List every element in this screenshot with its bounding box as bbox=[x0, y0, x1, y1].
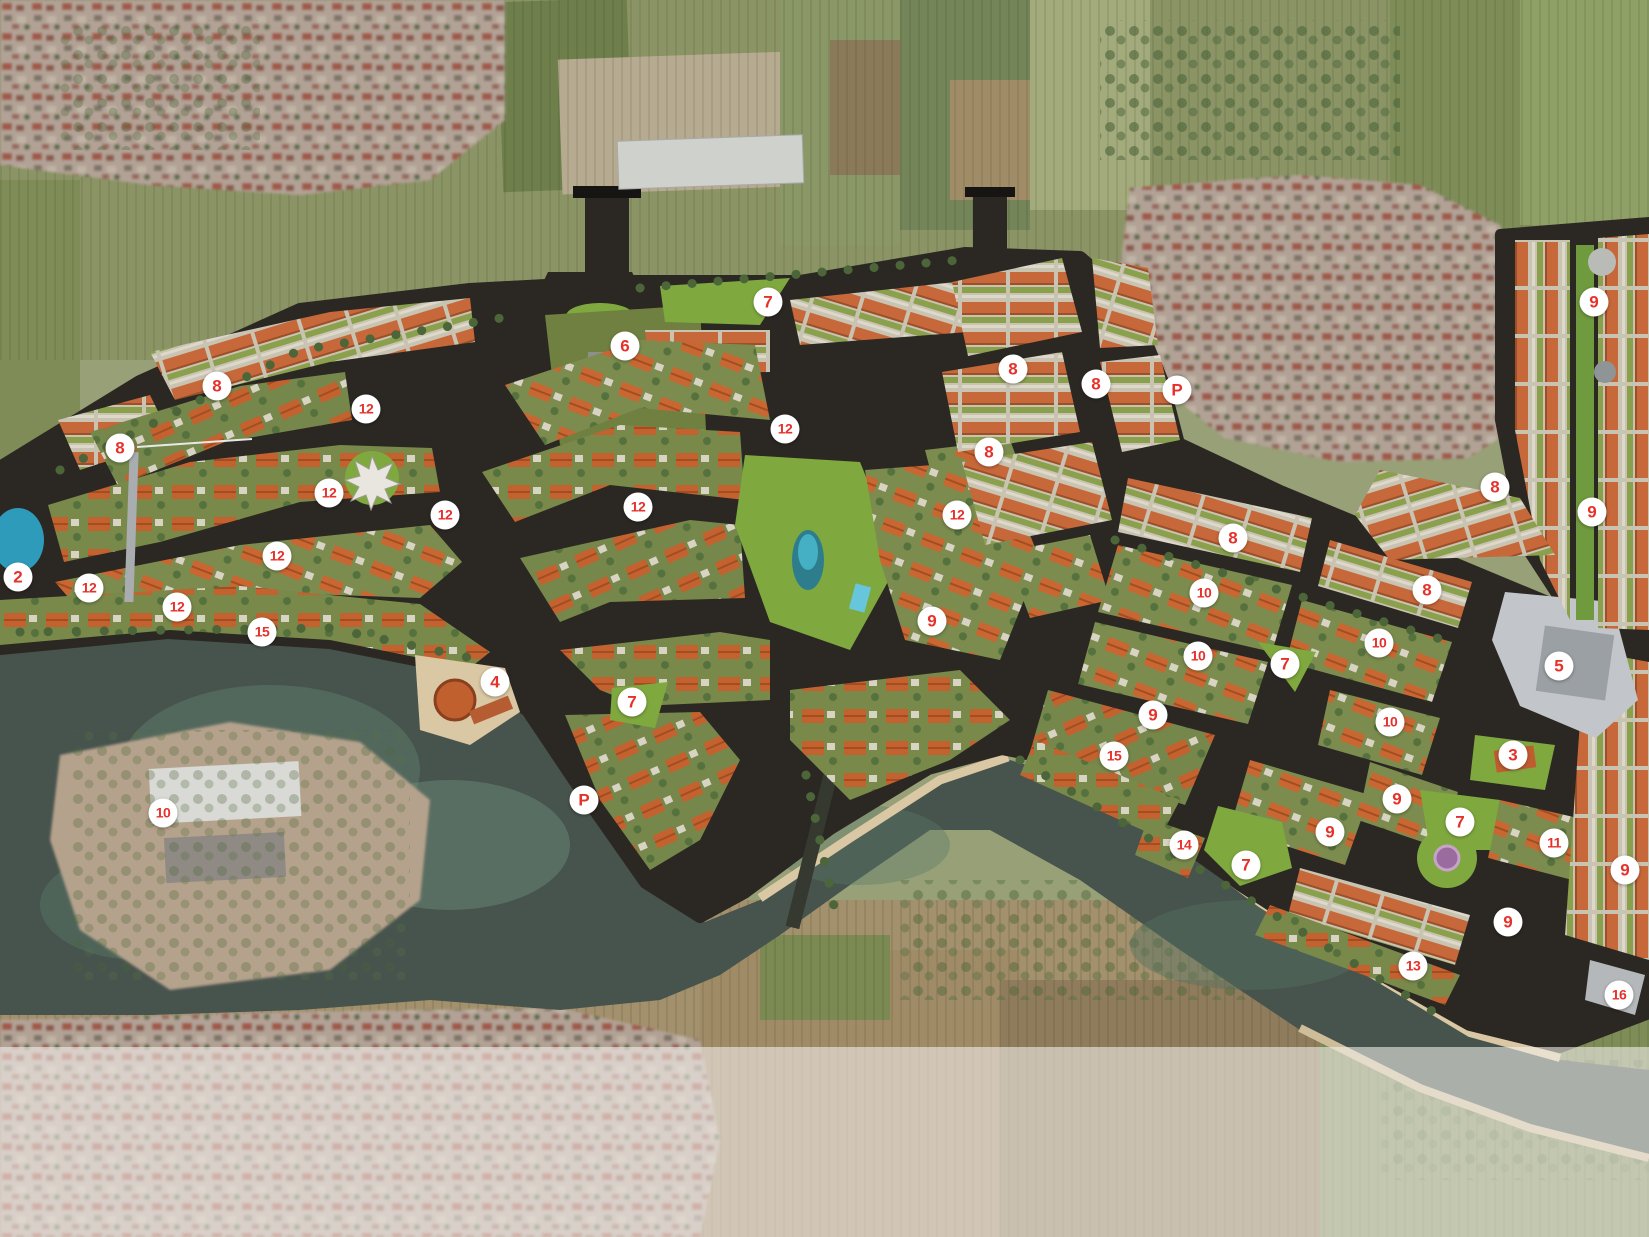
area-marker-8: 8 bbox=[975, 438, 1004, 467]
area-marker-9: 9 bbox=[1580, 288, 1609, 317]
area-marker-15: 15 bbox=[1100, 742, 1129, 771]
area-marker-7: 7 bbox=[1232, 851, 1261, 880]
area-marker-14: 14 bbox=[1170, 831, 1199, 860]
area-marker-7: 7 bbox=[1271, 650, 1300, 679]
area-marker-8: 8 bbox=[1481, 473, 1510, 502]
area-marker-8: 8 bbox=[1413, 576, 1442, 605]
area-marker-6: 6 bbox=[611, 332, 640, 361]
area-marker-12: 12 bbox=[431, 501, 460, 530]
area-marker-9: 9 bbox=[1383, 785, 1412, 814]
area-marker-12: 12 bbox=[352, 395, 381, 424]
area-marker-9: 9 bbox=[1494, 908, 1523, 937]
area-marker-8: 8 bbox=[1219, 524, 1248, 553]
area-marker-P: P bbox=[1163, 376, 1192, 405]
area-marker-10: 10 bbox=[1190, 579, 1219, 608]
area-marker-10: 10 bbox=[1365, 629, 1394, 658]
area-marker-12: 12 bbox=[943, 501, 972, 530]
area-marker-9: 9 bbox=[1316, 818, 1345, 847]
area-marker-16: 16 bbox=[1605, 981, 1634, 1010]
area-marker-9: 9 bbox=[1139, 701, 1168, 730]
masterplan-screenshot: 796888P121288812129121281221281012915101… bbox=[0, 0, 1649, 1237]
area-marker-9: 9 bbox=[918, 607, 947, 636]
area-marker-P: P bbox=[570, 786, 599, 815]
area-marker-11: 11 bbox=[1540, 829, 1569, 858]
area-marker-10: 10 bbox=[1184, 642, 1213, 671]
area-marker-4: 4 bbox=[481, 668, 510, 697]
area-marker-8: 8 bbox=[1082, 370, 1111, 399]
area-marker-12: 12 bbox=[624, 493, 653, 522]
area-marker-10: 10 bbox=[1376, 708, 1405, 737]
area-marker-7: 7 bbox=[618, 688, 647, 717]
area-marker-15: 15 bbox=[248, 618, 277, 647]
area-marker-7: 7 bbox=[1446, 808, 1475, 837]
area-marker-5: 5 bbox=[1545, 652, 1574, 681]
area-marker-8: 8 bbox=[999, 355, 1028, 384]
area-marker-12: 12 bbox=[263, 542, 292, 571]
area-marker-10: 10 bbox=[149, 799, 178, 828]
legend-panel: 1.CỔNG VÀO KHU ĐÔ THỊ2.KHU TRUNG TÂM THƯ… bbox=[0, 1047, 1649, 1237]
area-marker-12: 12 bbox=[163, 593, 192, 622]
area-marker-12: 12 bbox=[771, 415, 800, 444]
area-marker-12: 12 bbox=[315, 479, 344, 508]
area-marker-9: 9 bbox=[1578, 498, 1607, 527]
area-marker-13: 13 bbox=[1399, 952, 1428, 981]
area-marker-12: 12 bbox=[75, 574, 104, 603]
area-marker-2: 2 bbox=[4, 563, 33, 592]
area-marker-8: 8 bbox=[203, 372, 232, 401]
area-marker-7: 7 bbox=[754, 288, 783, 317]
area-marker-9: 9 bbox=[1611, 856, 1640, 885]
area-marker-8: 8 bbox=[106, 434, 135, 463]
area-marker-3: 3 bbox=[1499, 741, 1528, 770]
